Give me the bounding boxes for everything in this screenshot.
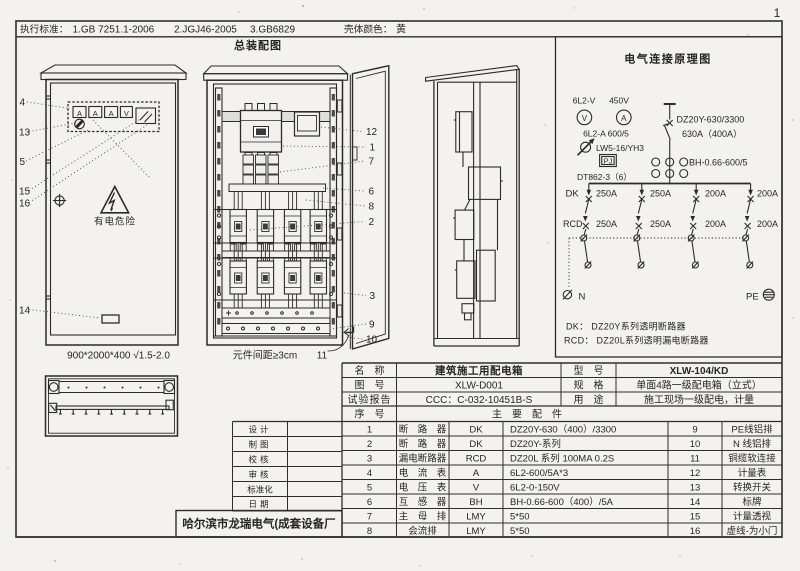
svg-text:250A: 250A [650,219,671,229]
svg-text:建筑施工用配电箱: 建筑施工用配电箱 [434,364,523,377]
svg-text:5: 5 [367,482,372,493]
svg-text:11: 11 [317,351,328,362]
svg-text:7: 7 [367,511,372,522]
svg-text:A: A [93,109,98,118]
svg-text:LMY: LMY [466,511,486,522]
svg-text:设计: 设计 [248,425,271,435]
svg-text:BH: BH [469,497,482,508]
svg-text:元件间距≥3cm: 元件间距≥3cm [233,349,297,362]
svg-text:450V: 450V [609,96,629,106]
svg-text:电气连接原理图: 电气连接原理图 [624,52,712,66]
svg-text:1: 1 [774,6,781,20]
svg-text:V: V [473,482,480,493]
svg-text:3.GB6829: 3.GB6829 [250,25,295,36]
svg-text:LW5-16/YH3: LW5-16/YH3 [596,143,644,153]
svg-text:6L2-600/5A*3: 6L2-600/5A*3 [510,468,568,479]
svg-text:BH-0.66-600/5: BH-0.66-600/5 [689,158,748,168]
svg-text:有电危险: 有电危险 [94,216,136,228]
svg-text:标牌: 标牌 [742,496,762,508]
svg-text:日期: 日期 [248,499,271,509]
svg-text:PJ: PJ [604,157,613,166]
svg-text:5*50: 5*50 [510,526,530,537]
svg-text:10: 10 [690,439,701,450]
svg-text:4: 4 [367,468,372,479]
svg-text:断 路 器: 断 路 器 [399,423,447,435]
svg-text:13: 13 [690,482,701,493]
svg-text:执行标准：: 执行标准： [20,23,68,36]
svg-text:1: 1 [370,143,376,154]
svg-text:2.JGJ46-2005: 2.JGJ46-2005 [174,25,237,36]
svg-text:11: 11 [690,453,700,464]
svg-text:200A: 200A [757,219,778,229]
svg-text:校核: 校核 [248,455,271,465]
svg-text:V: V [124,109,129,118]
svg-text:DK: DK [469,424,483,435]
svg-text:DZ20Y-630/3300: DZ20Y-630/3300 [677,115,745,125]
svg-text:900*2000*400 √1.5-2.0: 900*2000*400 √1.5-2.0 [67,350,170,362]
svg-text:图 号: 图 号 [355,380,385,392]
svg-text:12: 12 [366,127,378,138]
svg-text:V: V [582,114,588,123]
svg-text:A: A [621,114,627,123]
svg-text:6L2-V: 6L2-V [573,96,596,106]
svg-text:LMY: LMY [466,526,486,537]
svg-text:DT862-3（6）: DT862-3（6） [577,172,632,182]
svg-text:哈尔滨市龙瑞电气(成套设备厂: 哈尔滨市龙瑞电气(成套设备厂 [182,517,335,531]
svg-text:250A: 250A [596,219,617,229]
svg-text:总装配图: 总装配图 [234,38,282,52]
svg-text:铜缆软连接: 铜缆软连接 [728,452,776,464]
svg-text:虚线-为小门: 虚线-为小门 [727,525,778,537]
svg-text:10: 10 [366,335,378,346]
svg-text:规 格: 规 格 [574,379,604,392]
svg-text:200A: 200A [757,189,778,199]
svg-text:3: 3 [367,453,372,464]
svg-text:黄: 黄 [396,23,406,36]
svg-text:DK: DK [566,189,580,200]
svg-text:1: 1 [367,424,372,435]
svg-text:2: 2 [369,217,375,228]
svg-text:16: 16 [690,526,701,537]
svg-text:DK： DZ20Y系列透明断路器: DK： DZ20Y系列透明断路器 [566,321,686,332]
svg-text:壳体颜色：: 壳体颜色： [344,23,392,36]
svg-text:7: 7 [369,157,375,168]
svg-text:250A: 250A [650,189,671,199]
svg-text:单面4路一级配电箱（立式）: 单面4路一级配电箱（立式） [636,379,762,392]
svg-text:DZ20Y-系列: DZ20Y-系列 [510,438,561,450]
svg-text:计量表: 计量表 [738,467,767,479]
svg-text:审核: 审核 [248,470,271,480]
svg-text:A: A [77,109,82,118]
svg-text:主 要 配 件: 主 要 配 件 [492,409,562,421]
svg-text:XLW-104/KD: XLW-104/KD [670,366,729,377]
svg-text:9: 9 [692,424,697,435]
svg-text:DZ20L 系列 100MA 0.2S: DZ20L 系列 100MA 0.2S [510,452,614,464]
svg-text:PE: PE [746,292,759,303]
svg-text:1.GB 7251.1-2006: 1.GB 7251.1-2006 [73,25,155,36]
svg-text:15: 15 [690,511,701,522]
svg-text:DZ20Y-630（400）/3300: DZ20Y-630（400）/3300 [510,423,616,435]
svg-text:5*50: 5*50 [510,511,530,522]
svg-text:12: 12 [690,468,701,479]
svg-text:名 称: 名 称 [355,364,385,377]
svg-text:4: 4 [20,98,26,109]
svg-text:标准化: 标准化 [247,485,273,495]
svg-text:RCD: RCD [466,453,487,464]
svg-text:15: 15 [19,187,31,198]
svg-text:13: 13 [19,128,31,139]
svg-text:6: 6 [367,497,372,508]
svg-text:CCC：C-032-10451B-S: CCC：C-032-10451B-S [426,395,533,406]
svg-text:250A: 250A [596,189,617,199]
svg-text:14: 14 [19,306,31,317]
svg-text:型 号: 型 号 [574,364,604,377]
svg-text:转换开关: 转换开关 [733,481,772,493]
svg-text:PE线铝排: PE线铝排 [731,423,773,435]
svg-text:200A: 200A [705,189,726,199]
svg-text:3: 3 [370,291,376,302]
svg-text:互 感 器: 互 感 器 [399,496,447,508]
svg-text:16: 16 [19,199,31,210]
svg-text:DK: DK [469,439,483,450]
svg-text:断 路 器: 断 路 器 [399,438,447,450]
svg-text:6L2-A 600/5: 6L2-A 600/5 [583,129,629,139]
svg-text:8: 8 [369,202,375,213]
svg-text:会流排: 会流排 [408,525,437,537]
svg-text:主 母 排: 主 母 排 [399,510,447,522]
svg-text:制图: 制图 [248,440,271,450]
svg-text:试验报告: 试验报告 [348,393,392,406]
svg-text:N: N [579,292,586,303]
svg-text:A: A [473,468,480,479]
svg-text:N 线铝排: N 线铝排 [733,438,772,450]
svg-text:XLW-D001: XLW-D001 [455,381,503,392]
svg-text:施工现场一级配电，计量: 施工现场一级配电，计量 [644,393,754,406]
svg-text:200A: 200A [705,219,726,229]
svg-text:2: 2 [367,439,372,450]
svg-text:电 压 表: 电 压 表 [399,481,447,493]
svg-text:计量透视: 计量透视 [733,510,772,522]
svg-text:A: A [109,109,114,118]
svg-text:RCD： DZ20L系列透明漏电断路器: RCD： DZ20L系列透明漏电断路器 [564,335,709,346]
svg-text:序 号: 序 号 [355,408,385,421]
svg-text:630A（400A）: 630A（400A） [682,129,742,139]
svg-text:用 途: 用 途 [574,393,604,406]
svg-text:漏电断路器: 漏电断路器 [399,452,447,464]
svg-text:6L2-0-150V: 6L2-0-150V [510,482,560,493]
svg-text:电 流 表: 电 流 表 [399,467,447,479]
svg-text:RCD: RCD [563,219,583,229]
svg-text:6: 6 [369,187,375,198]
svg-text:5: 5 [20,157,26,168]
svg-text:14: 14 [690,497,701,508]
svg-text:9: 9 [369,320,375,331]
svg-text:BH-0.66-600（400）/5A: BH-0.66-600（400）/5A [510,496,614,508]
svg-text:8: 8 [367,526,372,537]
